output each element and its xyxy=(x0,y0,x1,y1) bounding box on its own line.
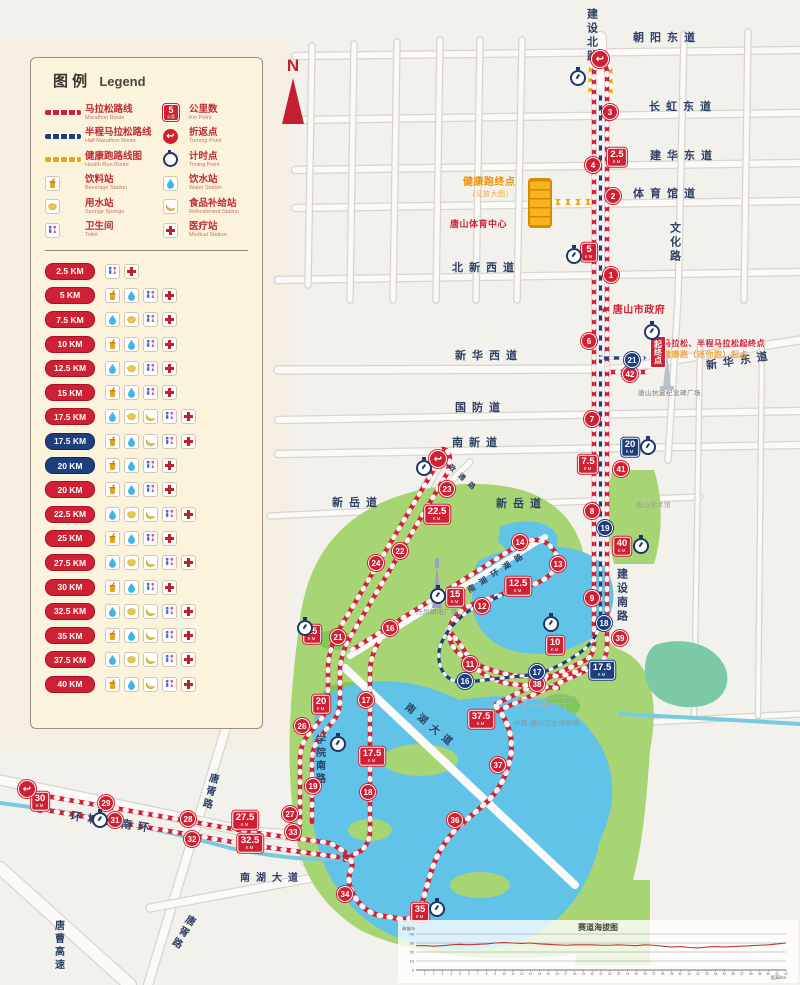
chart-xtick-label: 4 xyxy=(450,972,452,976)
medical-icon xyxy=(181,434,196,449)
north-label: N xyxy=(282,56,304,76)
landmark-label: （见放大图） xyxy=(468,191,513,198)
food-icon xyxy=(143,434,158,449)
road-label: 建设南路 xyxy=(615,568,627,624)
chart-xtick-label: 13 xyxy=(529,972,533,976)
legend-km-row: 37.5 KM xyxy=(45,648,252,672)
medical-icon xyxy=(181,604,196,619)
legend-km-row: 5 KM xyxy=(45,283,252,307)
legend-km-row: 10 KM xyxy=(45,332,252,356)
legend-item: 健康跑路线图Health Run Route xyxy=(45,148,161,172)
km-circle-marker: 16 xyxy=(457,673,473,689)
sponge-icon xyxy=(124,312,139,327)
legend-km-row: 15 KM xyxy=(45,380,252,404)
km-distance-pill: 20 KM xyxy=(45,457,95,474)
km-circle-marker: 6 xyxy=(581,333,597,349)
km-badge-unit: KM xyxy=(593,673,612,678)
medical-icon xyxy=(162,531,177,546)
legend-item-sample xyxy=(163,199,189,214)
road-label: 南湖大道 xyxy=(240,874,304,885)
legend-item-text: 用水站Sponge Sponge xyxy=(85,199,124,215)
km-circle-marker: 24 xyxy=(368,555,384,571)
km-badge-unit: KM xyxy=(585,255,594,260)
km-distance-pill: 15 KM xyxy=(45,384,95,401)
water-icon xyxy=(105,604,120,619)
toilet-icon xyxy=(143,361,158,376)
legend-item-text: 饮料站Beverage Station xyxy=(85,175,127,191)
legend-item-en: Water Station xyxy=(189,185,222,191)
km-distance-pill: 32.5 KM xyxy=(45,603,95,620)
toilet-icon xyxy=(162,677,177,692)
legend-km-rows: 2.5 KM5 KM7.5 KM10 KM12.5 KM15 KM17.5 KM… xyxy=(45,259,252,696)
beverage-icon xyxy=(105,531,120,546)
km-circle-marker: 32 xyxy=(184,831,200,847)
km-distance-pill: 7.5 KM xyxy=(45,311,95,328)
turning-point-icon: ↩ xyxy=(591,50,609,68)
marathon-route-map: 建设北路朝阳东道长虹东道建华东道体育馆道文化路北新西道新华西道新华东道国防道南新… xyxy=(0,0,800,985)
legend-panel: 图 例 Legend 马拉松路线Marathon Route5公里公里数Km P… xyxy=(30,57,263,729)
km-distance-pill: 12.5 KM xyxy=(45,360,95,377)
km-circle-marker: 36 xyxy=(447,812,463,828)
elevation-line xyxy=(416,943,786,948)
road-label: 南湖大道 xyxy=(402,703,458,752)
km-badge: 20KM xyxy=(621,438,639,457)
legend-item-en: Refreshment Station xyxy=(189,209,239,215)
legend-km-row: 25 KM xyxy=(45,526,252,550)
toilet-icon xyxy=(143,580,158,595)
km-distance-pill: 27.5 KM xyxy=(45,554,95,571)
legend-item-zh: 卫生间 xyxy=(85,222,114,232)
km-badge: 32.5KM xyxy=(237,834,263,853)
km-distance-pill: 25 KM xyxy=(45,530,95,547)
legend-divider xyxy=(45,250,248,251)
chart-xtick-label: 38 xyxy=(749,972,753,976)
legend-km-row: 2.5 KM xyxy=(45,259,252,283)
km-row-stations xyxy=(105,458,177,473)
food-icon xyxy=(143,652,158,667)
toilet-icon xyxy=(143,385,158,400)
km-badge-unit: KM xyxy=(610,160,623,165)
km-badge-unit: KM xyxy=(241,846,260,851)
km-circle-marker: 1 xyxy=(603,267,619,283)
legend-km-row: 40 KM xyxy=(45,672,252,696)
beverage-icon xyxy=(105,482,120,497)
chart-xtick-label: 18 xyxy=(573,972,577,976)
sports-center-icon xyxy=(528,178,552,228)
km-circle-marker: 33 xyxy=(285,824,301,840)
chart-xtick-label: 7 xyxy=(477,972,479,976)
toilet-icon xyxy=(162,652,177,667)
legend-item-text: 折返点Turning Point xyxy=(189,128,222,144)
beverage-icon xyxy=(105,385,120,400)
legend-item-en: Medical Station xyxy=(189,232,227,238)
km-badge: 22.5KM xyxy=(424,505,450,524)
km-badge: 15KM xyxy=(446,588,464,607)
sponge-icon xyxy=(124,507,139,522)
toilet-icon xyxy=(45,223,60,238)
chart-xtick-label: 33 xyxy=(705,972,709,976)
toilet-icon xyxy=(162,434,177,449)
km-badge-unit: KM xyxy=(307,637,318,642)
legend-item-sample xyxy=(163,176,189,191)
km-row-stations xyxy=(105,652,196,667)
beverage-icon xyxy=(105,434,120,449)
start-finish-banner: 起终点 xyxy=(650,336,666,368)
km-circle-marker: 39 xyxy=(612,630,628,646)
km-circle-marker: 34 xyxy=(337,886,353,902)
km-distance-pill: 20 KM xyxy=(45,481,95,498)
km-badge-unit: KM xyxy=(363,759,382,764)
toilet-icon xyxy=(162,409,177,424)
km-row-stations xyxy=(105,677,196,692)
road-label: 长虹东道 xyxy=(649,102,717,114)
chart-xtick-label: 35 xyxy=(723,972,727,976)
km-distance-pill: 5 KM xyxy=(45,287,95,304)
turning-point-icon: ↩ xyxy=(18,780,36,798)
chart-xtick-label: 11 xyxy=(511,972,515,976)
km-distance-pill: 22.5 KM xyxy=(45,506,95,523)
chart-ytick: 30 xyxy=(410,941,415,946)
km-circle-marker: 7 xyxy=(584,411,600,427)
legend-item: 饮水站Water Station xyxy=(163,172,259,196)
km-badge-unit: KM xyxy=(428,517,447,522)
legend-item-text: 马拉松路线Marathon Route xyxy=(85,105,133,121)
chart-xtick-label: 3 xyxy=(442,972,444,976)
chart-xtick-label: 36 xyxy=(731,972,735,976)
legend-title-en: Legend xyxy=(99,74,145,89)
legend-item-zh: 医疗站 xyxy=(189,222,227,232)
toilet-icon xyxy=(162,604,177,619)
medical-icon xyxy=(162,288,177,303)
chart-xtick-label: 39 xyxy=(758,972,762,976)
km-circle-marker: 4 xyxy=(585,157,601,173)
km-row-stations xyxy=(105,555,196,570)
road-label: 唐胥路 xyxy=(198,771,218,811)
toilet-icon xyxy=(143,458,158,473)
km-row-stations xyxy=(105,604,196,619)
timing-point-icon xyxy=(297,620,313,636)
chart-xtick-label: 6 xyxy=(468,972,470,976)
legend-km-row: 27.5 KM xyxy=(45,551,252,575)
beverage-icon xyxy=(105,458,120,473)
km-circle-marker: 19 xyxy=(305,778,321,794)
road-label: 唐胥路 xyxy=(167,912,196,951)
legend-item-sample xyxy=(163,152,189,167)
chart-xtick-label: 20 xyxy=(590,972,594,976)
water-icon xyxy=(124,288,139,303)
medical-icon xyxy=(162,580,177,595)
chart-xtick-label: 37 xyxy=(740,972,744,976)
chart-xtick-label: 26 xyxy=(643,972,647,976)
km-circle-marker: 28 xyxy=(180,811,196,827)
chart-xtick-label: 21 xyxy=(599,972,603,976)
legend-item-zh: 公里数 xyxy=(189,105,218,115)
km-circle-marker: 18 xyxy=(360,784,376,800)
legend-item: 医疗站Medical Station xyxy=(163,219,259,243)
chart-xtick-label: 42 xyxy=(784,972,788,976)
km-badge: 40KM xyxy=(613,537,631,556)
chart-ytick: 10 xyxy=(410,959,415,964)
km-circle-marker: 18 xyxy=(596,615,612,631)
water-icon xyxy=(124,434,139,449)
chart-xtick-label: 5 xyxy=(459,972,461,976)
km-badge: 27.5KM xyxy=(232,811,258,830)
legend-item-zh: 半程马拉松路线 xyxy=(85,128,152,138)
medical-icon xyxy=(162,361,177,376)
legend-item-en: Toilet xyxy=(85,232,114,238)
legend-item-en: Timing Point xyxy=(189,162,219,168)
km-circle-marker: 17 xyxy=(529,664,545,680)
sponge-icon xyxy=(124,652,139,667)
elevation-chart-title: 赛道海拔图 xyxy=(398,922,798,933)
chart-xtick-label: 2 xyxy=(433,972,435,976)
chart-xtick-label: 31 xyxy=(687,972,691,976)
km-badge-unit: KM xyxy=(617,549,628,554)
km-circle-marker: 8 xyxy=(584,503,600,519)
legend-item: ↩折返点Turning Point xyxy=(163,125,259,149)
km-row-stations xyxy=(105,580,177,595)
sponge-icon xyxy=(124,361,139,376)
km-row-stations xyxy=(105,264,139,279)
water-icon xyxy=(124,580,139,595)
road-label: 新华西道 xyxy=(455,351,523,363)
km-badge-unit: KM xyxy=(472,722,491,727)
km-badge-unit: KM xyxy=(625,450,636,455)
km-circle-marker: 3 xyxy=(602,104,618,120)
km-distance-pill: 35 KM xyxy=(45,627,95,644)
legend-item-text: 半程马拉松路线Half Marathon Route xyxy=(85,128,152,144)
medical-icon xyxy=(181,652,196,667)
water-icon xyxy=(105,507,120,522)
km-distance-pill: 17.5 KM xyxy=(45,433,95,450)
medical-icon xyxy=(162,458,177,473)
km-badge: 17.5KM xyxy=(359,747,385,766)
km-badge-unit: KM xyxy=(316,707,327,712)
legend-item-en: Beverage Station xyxy=(85,185,127,191)
km-distance-pill: 10 KM xyxy=(45,336,95,353)
chart-xtick-label: 12 xyxy=(520,972,524,976)
landmark-label: 丹凤朝阳广场 xyxy=(416,610,458,617)
beverage-icon xyxy=(105,337,120,352)
toilet-icon xyxy=(162,507,177,522)
water-icon xyxy=(124,531,139,546)
elevation-chart: 赛道海拔图 010203040海拔/m距离/km1234567891011121… xyxy=(398,920,798,983)
road-label: 新岳道 xyxy=(332,498,383,510)
medical-icon xyxy=(181,628,196,643)
km-circle-marker: 21 xyxy=(330,629,346,645)
beverage-icon xyxy=(105,628,120,643)
beverage-icon xyxy=(105,288,120,303)
km-distance-pill: 17.5 KM xyxy=(45,408,95,425)
legend-item-zh: 马拉松路线 xyxy=(85,105,133,115)
km-badge: 10KM xyxy=(546,636,564,655)
km-distance-pill: 30 KM xyxy=(45,579,95,596)
landmark-label: 健康跑（迷你跑）起点 xyxy=(663,351,748,359)
legend-item-sample xyxy=(45,199,85,214)
km-badge-unit: KM xyxy=(35,804,46,809)
chart-xtick-label: 9 xyxy=(494,972,496,976)
timing-point-icon xyxy=(416,460,432,476)
legend-item: 饮料站Beverage Station xyxy=(45,172,161,196)
km-badge: 5KM xyxy=(581,243,597,262)
legend-item-sample xyxy=(45,134,85,139)
north-arrow: N xyxy=(282,56,304,124)
food-icon xyxy=(143,628,158,643)
beverage-icon xyxy=(105,677,120,692)
chart-ytick: 20 xyxy=(410,950,415,955)
water-icon xyxy=(105,555,120,570)
food-icon xyxy=(143,409,158,424)
legend-km-row: 32.5 KM xyxy=(45,599,252,623)
landmark-label: 唐山美术馆 xyxy=(636,503,671,510)
road-label: 北新西道 xyxy=(452,263,520,275)
km-badge: 35KM xyxy=(411,903,429,922)
medical-icon xyxy=(181,507,196,522)
chart-xtick-label: 10 xyxy=(502,972,506,976)
legend-item-en: Turning Point xyxy=(189,138,222,144)
legend-item-text: 卫生间Toilet xyxy=(85,222,114,238)
water-icon xyxy=(124,628,139,643)
km-distance-pill: 37.5 KM xyxy=(45,651,95,668)
chart-xtick-label: 24 xyxy=(626,972,630,976)
medical-icon xyxy=(181,677,196,692)
km-badge-unit: KM xyxy=(450,600,461,605)
km-badge-unit: KM xyxy=(509,589,528,594)
landmark-label: 马拉松、半程马拉松起终点 xyxy=(663,340,765,348)
legend-item-sample xyxy=(45,223,85,238)
chart-xtick-label: 28 xyxy=(661,972,665,976)
chart-xtick-label: 14 xyxy=(538,972,542,976)
food-icon xyxy=(163,199,178,214)
km-circle-marker: 14 xyxy=(512,534,528,550)
timing-point-icon xyxy=(543,616,559,632)
km-circle-marker: 19 xyxy=(597,520,613,536)
road-label: 唐曹高速 xyxy=(52,920,63,972)
legend-km-row: 20 KM xyxy=(45,453,252,477)
legend-km-row: 17.5 KM xyxy=(45,429,252,453)
chart-xtick-label: 29 xyxy=(670,972,674,976)
km-row-stations xyxy=(105,507,196,522)
chart-xtick-label: 19 xyxy=(582,972,586,976)
line-orange-sample xyxy=(45,157,81,162)
legend-items: 马拉松路线Marathon Route5公里公里数Km Point半程马拉松路线… xyxy=(45,101,252,242)
landmark-label: 健康跑终点 xyxy=(463,178,516,189)
legend-km-row: 35 KM xyxy=(45,623,252,647)
km-row-stations xyxy=(105,385,177,400)
km-badge: 20KM xyxy=(312,695,330,714)
road-label: 新岳道 xyxy=(496,499,547,511)
food-icon xyxy=(143,677,158,692)
km-circle-marker: 21 xyxy=(624,352,640,368)
line-blue-sample xyxy=(45,134,81,139)
toilet-icon xyxy=(143,531,158,546)
timing-point-icon xyxy=(644,324,660,340)
legend-item-zh: 饮料站 xyxy=(85,175,127,185)
water-icon xyxy=(124,337,139,352)
water-icon xyxy=(124,482,139,497)
km-row-stations xyxy=(105,409,196,424)
timing-point-icon xyxy=(430,588,446,604)
toilet-icon xyxy=(143,337,158,352)
km-circle-marker: 17 xyxy=(358,692,374,708)
water-icon xyxy=(124,677,139,692)
legend-item: 半程马拉松路线Half Marathon Route xyxy=(45,125,161,149)
chart-xtick-label: 22 xyxy=(608,972,612,976)
km-circle-marker: 23 xyxy=(439,481,455,497)
chart-xtick-label: 32 xyxy=(696,972,700,976)
legend-item: 食品补给站Refreshment Station xyxy=(163,195,259,219)
legend-title: 图 例 Legend xyxy=(53,70,252,91)
km-circle-marker: 11 xyxy=(462,656,478,672)
road-label: 文化路 xyxy=(668,222,680,264)
legend-item: 卫生间Toilet xyxy=(45,219,161,243)
legend-title-zh: 图 例 xyxy=(53,73,87,90)
km-badge-unit: KM xyxy=(581,467,594,472)
beverage-icon xyxy=(105,580,120,595)
km-badge: 37.5KM xyxy=(468,710,494,729)
legend-km-row: 7.5 KM xyxy=(45,308,252,332)
toilet-icon xyxy=(143,482,158,497)
timing-point-icon xyxy=(429,901,445,917)
legend-item: 马拉松路线Marathon Route xyxy=(45,101,161,125)
km-badge: 2.5KM xyxy=(607,148,627,167)
legend-km-row: 30 KM xyxy=(45,575,252,599)
medical-icon xyxy=(162,385,177,400)
chart-ytick: 0 xyxy=(412,968,415,973)
legend-item-zh: 饮水站 xyxy=(189,175,222,185)
km-circle-marker: 12 xyxy=(474,598,490,614)
legend-item-text: 健康跑路线图Health Run Route xyxy=(85,152,142,168)
km-row-stations xyxy=(105,434,196,449)
legend-item-text: 医疗站Medical Station xyxy=(189,222,227,238)
legend-item-en: Half Marathon Route xyxy=(85,138,152,144)
km-row-stations xyxy=(105,531,177,546)
legend-km-row: 22.5 KM xyxy=(45,502,252,526)
food-icon xyxy=(143,604,158,619)
road-label: 体育馆道 xyxy=(633,189,701,201)
chart-xtick-label: 30 xyxy=(679,972,683,976)
landmark-label: 中国·唐山工业博物馆 xyxy=(514,721,580,728)
timing-point-icon xyxy=(163,152,178,167)
legend-item-sample: ↩ xyxy=(163,129,189,144)
legend-item-sample xyxy=(45,176,85,191)
toilet-icon xyxy=(162,628,177,643)
medical-icon xyxy=(163,223,178,238)
km-distance-pill: 2.5 KM xyxy=(45,263,95,280)
landmark-label: 唐山体育中心 xyxy=(450,220,507,229)
line-red-sample xyxy=(45,110,81,115)
water-icon xyxy=(105,652,120,667)
km-row-stations xyxy=(105,361,177,376)
legend-item-sample xyxy=(163,223,189,238)
km-circle-marker: 22 xyxy=(392,543,408,559)
medical-icon xyxy=(162,337,177,352)
km-row-stations xyxy=(105,312,177,327)
legend-item-zh: 折返点 xyxy=(189,128,222,138)
beverage-icon xyxy=(45,176,60,191)
km-circle-marker: 13 xyxy=(550,556,566,572)
chart-xtick-label: 16 xyxy=(555,972,559,976)
food-icon xyxy=(143,555,158,570)
sponge-icon xyxy=(45,199,60,214)
toilet-icon xyxy=(143,288,158,303)
chart-xtick-label: 23 xyxy=(617,972,621,976)
water-icon xyxy=(105,361,120,376)
timing-point-icon xyxy=(330,736,346,752)
legend-item: 用水站Sponge Sponge xyxy=(45,195,161,219)
km-circle-marker: 42 xyxy=(622,366,638,382)
chart-xtick-label: 1 xyxy=(424,972,426,976)
